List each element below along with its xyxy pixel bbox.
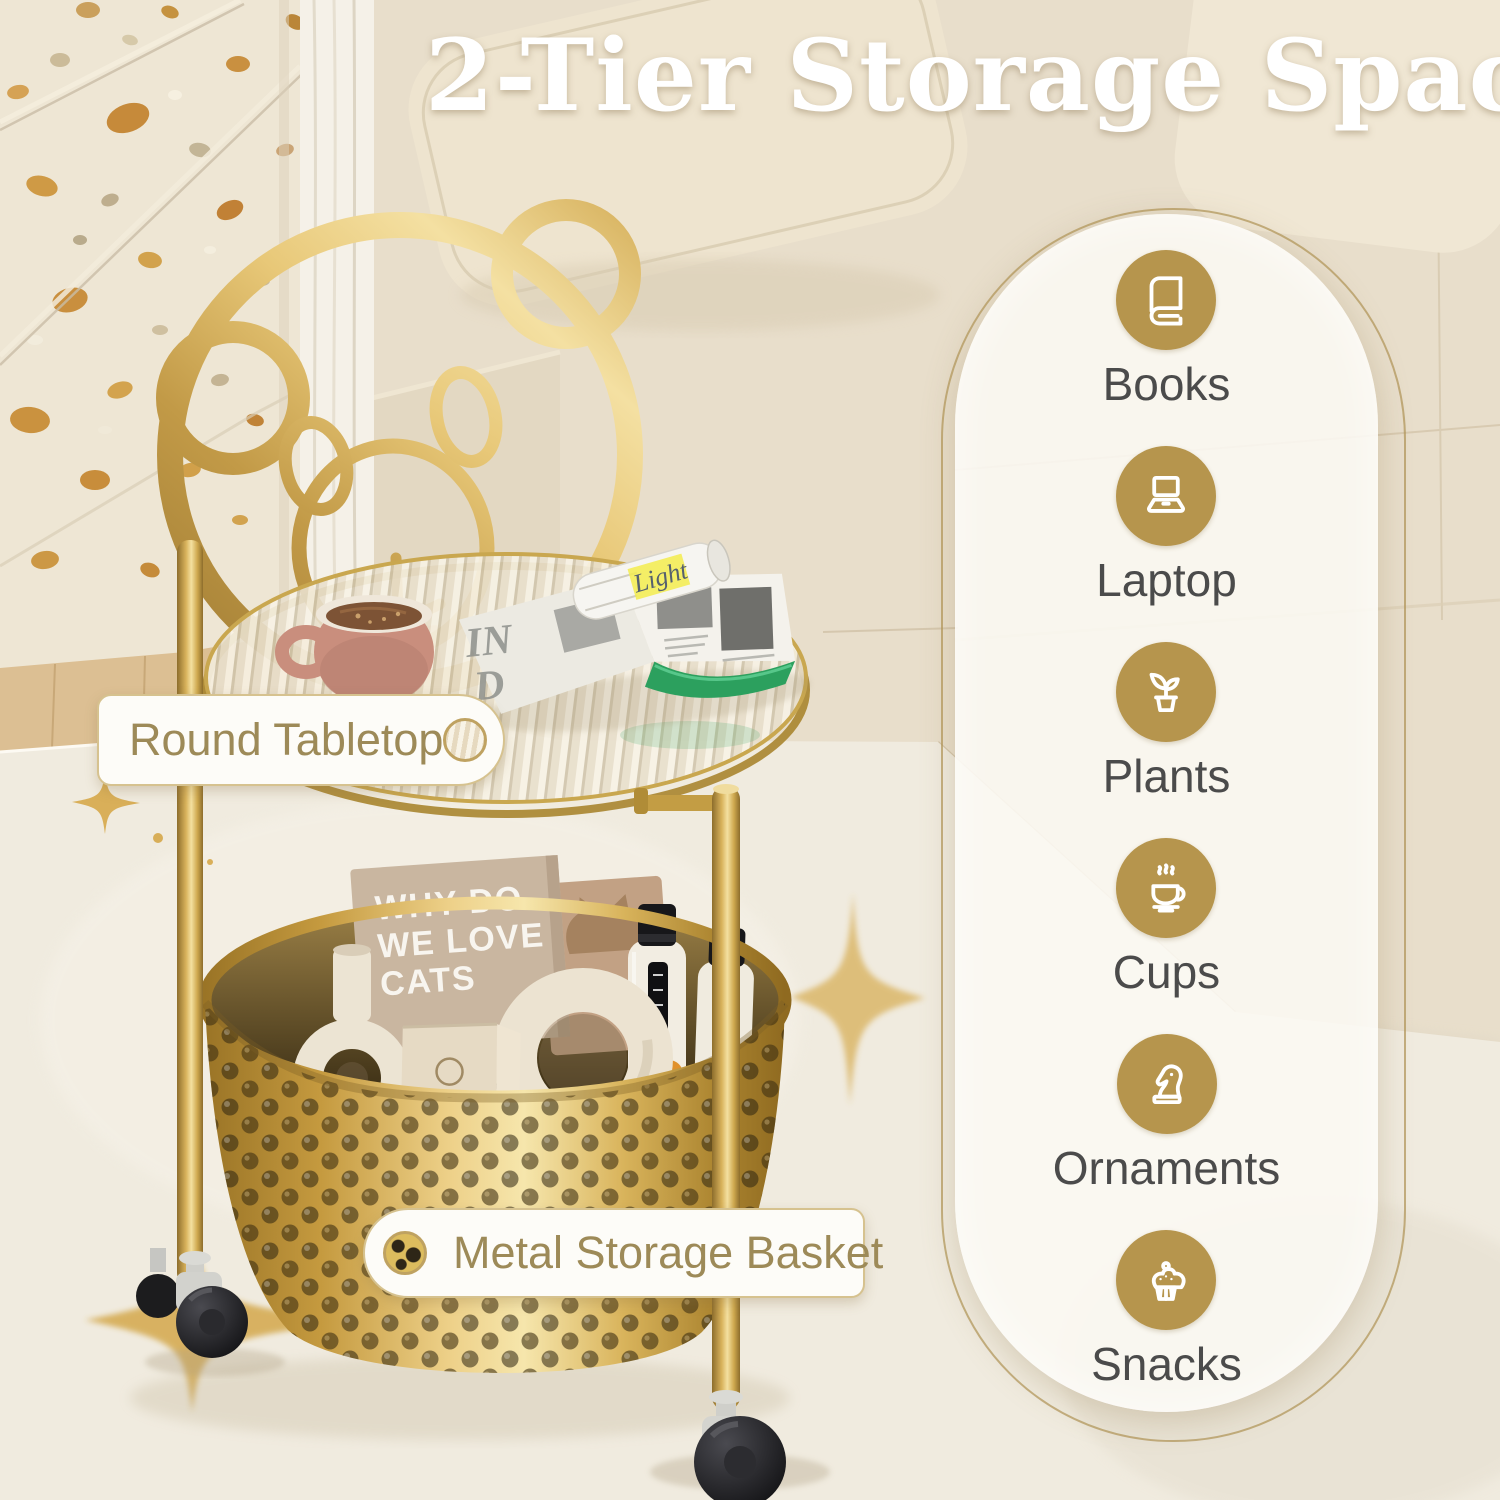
basket-porthole-icon (383, 1231, 427, 1275)
right-leg (712, 786, 740, 1410)
product-marketing-image: { "title": "2-Tier Storage Space", "call… (0, 0, 1500, 1500)
feature-label: Ornaments (1053, 1142, 1281, 1194)
left-leg (177, 540, 203, 1285)
feature-label: Laptop (1096, 554, 1237, 606)
feature-label: Cups (1113, 946, 1220, 998)
feature-circle-ornaments (1117, 1034, 1217, 1134)
laptop-icon (1137, 467, 1195, 525)
callout-basket-label: Metal Storage Basket (453, 1227, 883, 1279)
feature-label: Snacks (1091, 1338, 1242, 1390)
feature-circle-snacks (1116, 1230, 1216, 1330)
cupcake-icon (1137, 1251, 1195, 1309)
support-bar (640, 795, 720, 811)
feature-ornaments: Ornaments (1053, 1034, 1281, 1194)
tabletop-porthole-icon (443, 718, 487, 762)
feature-laptop: Laptop (1096, 446, 1237, 606)
feature-plants: Plants (1103, 642, 1231, 802)
page-title: 2-Tier Storage Space (425, 18, 1490, 134)
curtain (300, 0, 374, 652)
feature-list: Books Laptop P (955, 214, 1378, 1412)
callout-metal-storage-basket: Metal Storage Basket (363, 1208, 865, 1298)
chess-knight-icon (1138, 1055, 1196, 1113)
feature-books: Books (1103, 250, 1231, 410)
feature-cups: Cups (1113, 838, 1220, 998)
plant-icon (1137, 663, 1195, 721)
feature-label: Plants (1103, 750, 1231, 802)
feature-circle-plants (1116, 642, 1216, 742)
feature-circle-books (1116, 250, 1216, 350)
book-icon (1137, 271, 1195, 329)
feature-circle-cups (1116, 838, 1216, 938)
coffee-cup-icon (1137, 859, 1195, 917)
feature-label: Books (1103, 358, 1231, 410)
feature-panel: Books Laptop P (955, 214, 1378, 1412)
magazine-cover-text-1: IN (462, 616, 516, 667)
callout-tabletop-label: Round Tabletop (129, 714, 443, 766)
book-title-line3: CATS (379, 959, 477, 1004)
feature-circle-laptop (1116, 446, 1216, 546)
feature-snacks: Snacks (1091, 1230, 1242, 1390)
callout-round-tabletop: Round Tabletop (97, 694, 505, 786)
